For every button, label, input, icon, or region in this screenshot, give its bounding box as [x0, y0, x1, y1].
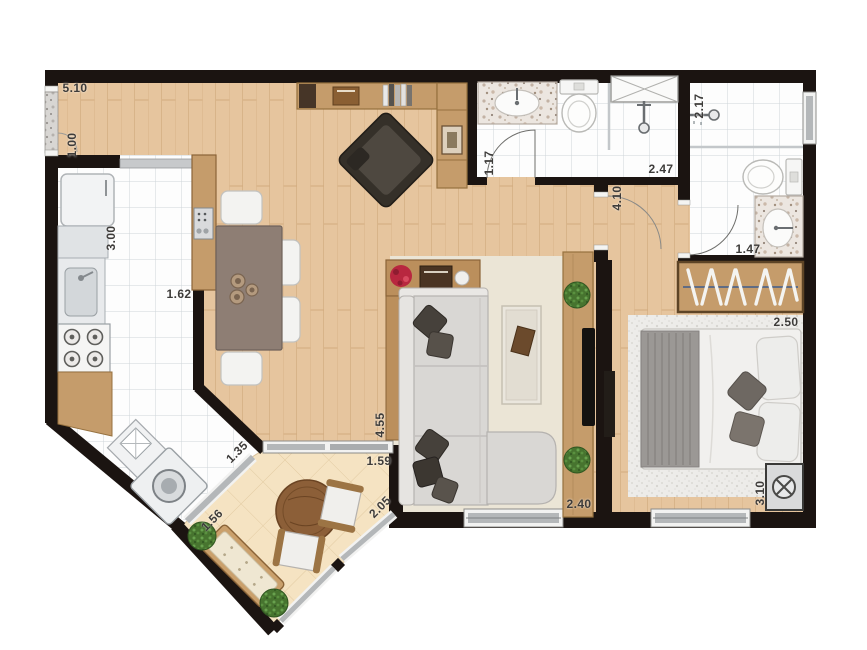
entry-door-frame-top: [45, 86, 58, 92]
dimension-label: 1.59: [367, 454, 392, 468]
tv-icon: [582, 328, 595, 426]
bed-icon: [641, 329, 801, 469]
dimension-label: 4.55: [373, 413, 387, 438]
bed-pillow-white-2: [757, 402, 801, 462]
floor-plan-page: 5.10 1.00 3.00 1.62 1.35 1.56 1.59 2.05 …: [0, 0, 867, 650]
kitchen-entry-stub-wall: [45, 155, 120, 168]
bedroom-door-frame-top: [594, 192, 608, 197]
dimension-label: 4.10: [610, 186, 624, 211]
bedroom-door-frame-bottom: [594, 245, 608, 250]
bathrooms-divider-wall: [678, 70, 690, 205]
tv-panel-icon: [563, 252, 595, 517]
dimension-label: 1.62: [167, 287, 192, 301]
shower-niche-icon: [611, 76, 678, 102]
closet-icon: [678, 262, 803, 312]
bedroom-window-icon: [651, 509, 750, 527]
bathroom2-door-frame-bottom: [678, 253, 690, 258]
entry-door-frame-bottom: [45, 150, 58, 156]
book-on-desk-icon: [333, 87, 359, 105]
dining-chair-top: [221, 191, 262, 224]
stove-icon: [58, 324, 110, 372]
dining-chair-bottom: [221, 352, 262, 385]
bathroom2-toilet-icon: [743, 159, 802, 195]
plate-icon: [455, 271, 469, 285]
balcony-sliding-door-icon: [263, 441, 393, 453]
balcony-plant-bottom: [260, 589, 288, 617]
plant-icon-top: [564, 282, 590, 308]
dimension-label: 3.10: [753, 481, 767, 506]
bathroom1-sink-icon: [478, 82, 557, 124]
books-upright-icon: [383, 84, 412, 106]
kitchen-mid-wall: [193, 288, 204, 390]
floor-plan-canvas: [0, 0, 867, 650]
top-wall: [45, 70, 815, 83]
kitchen-sink-icon: [58, 258, 105, 324]
left-wall-lower: [45, 153, 58, 423]
coffee-machine-icon: [194, 208, 213, 239]
dimension-label: 1.47: [736, 242, 761, 256]
dimension-label: 2.17: [692, 94, 706, 119]
bathroom1-bottom-wall-left: [467, 177, 487, 185]
bathroom2-sink-icon: [755, 196, 803, 257]
kitchen-pass-sill: [120, 159, 193, 168]
bar-counter: [192, 155, 216, 290]
bathroom2-door-frame-top: [678, 200, 690, 205]
desk-shelf-icon: [297, 83, 437, 109]
ac-unit-icon: [766, 464, 803, 510]
dimension-label: 2.47: [649, 162, 674, 176]
desk-chair: [299, 84, 316, 108]
bedroom-dresser: [604, 371, 615, 437]
dimension-label: 3.00: [104, 226, 118, 251]
bathroom2-window-icon: [803, 92, 816, 144]
kitchen-counter-steel: [58, 226, 108, 258]
dimension-label: 1.00: [65, 133, 79, 158]
coffee-table-icon: [502, 306, 541, 404]
bathroom1-left-wall: [467, 83, 477, 185]
living-window-icon: [464, 509, 563, 527]
bathroom1-toilet-icon: [560, 80, 598, 132]
entry-door-threshold: [45, 92, 58, 153]
dimension-label: 1.17: [482, 151, 496, 176]
dimension-label: 2.40: [567, 497, 592, 511]
display-cabinet-icon: [437, 83, 467, 188]
bottom-wall: [390, 512, 816, 528]
plant-icon-bottom: [564, 447, 590, 473]
dimension-label: 2.50: [774, 315, 799, 329]
dimension-label: 5.10: [63, 81, 88, 95]
